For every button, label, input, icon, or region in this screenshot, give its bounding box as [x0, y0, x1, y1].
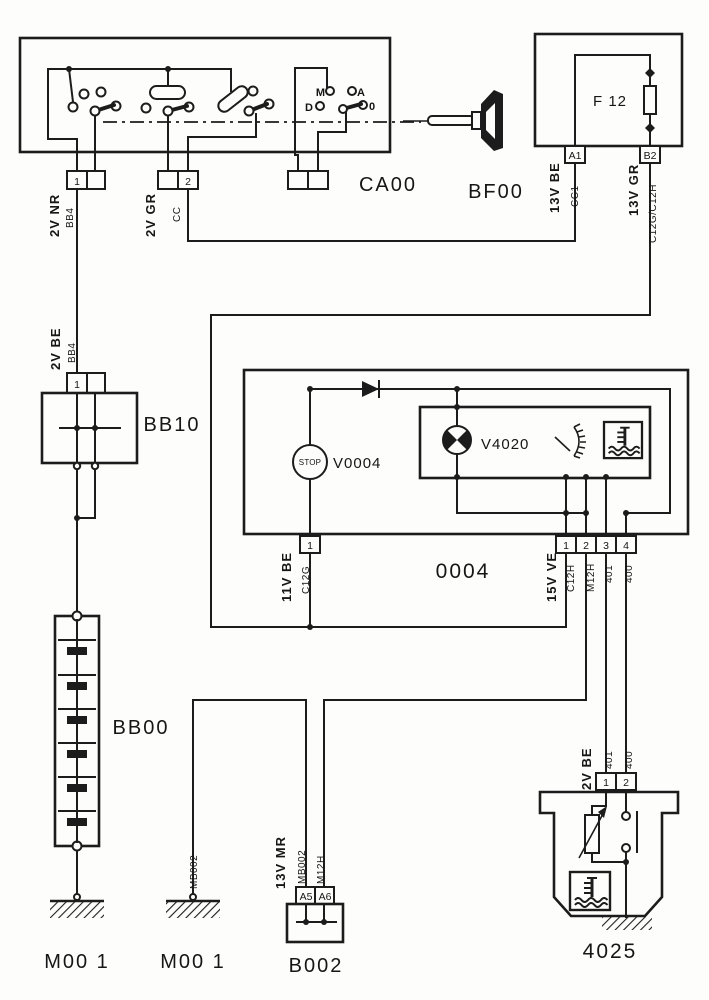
coolant-temp-icon	[604, 422, 642, 458]
bf00-b2-wire-label: 13V GR	[626, 164, 641, 216]
wire-13v-gr	[211, 163, 650, 627]
sensor-ground-hatch-icon	[602, 917, 652, 930]
ground-m001-right: MB002 M00 1	[160, 855, 226, 973]
junction-dot	[74, 425, 80, 431]
component-b002: A5 A6 13V MR MB002 M12H B002	[273, 836, 343, 977]
bf00-pin-b2-number: B2	[644, 150, 657, 162]
cluster-pin3-number: 3	[603, 540, 609, 552]
bf00-box	[535, 34, 682, 146]
ca00-pin2-wire-label: 2V GR	[143, 193, 158, 237]
ignition-key-icon	[403, 90, 503, 151]
ca00-pin2a-box	[158, 171, 178, 189]
wire-switch4-frame	[295, 68, 327, 171]
rotary-switch-2-icon	[142, 86, 194, 116]
ca00-pin1-wire-code: BB4	[65, 208, 76, 228]
ground1-label: M00 1	[44, 951, 110, 973]
v4020-ref-label: V4020	[481, 436, 529, 453]
ca00-pin2-number: 2	[185, 176, 191, 188]
wire-bb10-out	[77, 469, 95, 612]
ground2-label: M00 1	[160, 951, 226, 973]
ca00-pin2-wire-code: CC	[172, 207, 183, 222]
rotary-switch-4-icon: M A D 0	[305, 87, 375, 114]
fuse-node-top	[645, 68, 655, 78]
wire-pin4-feed	[626, 389, 670, 536]
diode-icon	[362, 381, 379, 397]
wire-switch1-feed	[69, 69, 73, 102]
b002-pin-a5-number: A5	[300, 891, 313, 903]
sensor-wire2-code: 400	[624, 751, 635, 769]
ground-hatch-icon	[166, 902, 220, 918]
cluster-ref-label: 0004	[436, 560, 491, 583]
junction-dot	[165, 66, 171, 72]
sensor-pin2-number: 2	[623, 777, 629, 789]
bf00-ref-label: BF00	[468, 181, 524, 203]
bb00-ref-label: BB00	[113, 717, 170, 739]
cluster-pin-left-number: 1	[307, 540, 313, 552]
wire-ca00-pin1-feed	[48, 69, 77, 171]
fuse-f12-label: F 12	[593, 93, 627, 110]
sensor-pin1-number: 1	[603, 777, 609, 789]
bb10-links	[60, 393, 120, 463]
b002-a6-wire-code: M12H	[316, 855, 327, 884]
rotary-switch-3-icon	[216, 84, 274, 116]
b002-pin-a6-number: A6	[319, 891, 332, 903]
v0004-ref-label: V0004	[333, 455, 381, 472]
cluster-wire2-code: M12H	[586, 563, 597, 592]
ca00-pin3b-box	[308, 171, 328, 189]
b002-a5-wire-code: MB002	[297, 850, 308, 884]
ground2-wire-code: MB002	[189, 855, 200, 889]
thermal-switch-icon	[622, 812, 637, 852]
cluster-right-wire-label: 15V VE	[544, 552, 559, 602]
gauge-icon	[555, 424, 586, 458]
switch-pos-a: A	[357, 87, 365, 99]
wire-mb002	[193, 700, 306, 894]
junction-dot	[66, 66, 72, 72]
sensor-ref-label: 4025	[583, 940, 638, 963]
bb10-ref-label: BB10	[144, 414, 201, 436]
junction-dot	[623, 859, 629, 865]
bf00-b2-wire-code: C12G/C12H	[648, 184, 659, 243]
ca00-box	[20, 38, 390, 152]
cluster-pin1-number: 1	[563, 540, 569, 552]
bb10-terminal	[92, 463, 98, 469]
warning-lamp-icon	[443, 426, 471, 454]
ca00-pin1b-box	[87, 171, 105, 189]
battery-cells-icon	[59, 620, 95, 842]
cluster-wire1-code: C12H	[566, 564, 577, 592]
component-bb10: 1 BB10 2V BE BB4	[42, 327, 200, 521]
ground-hatch-icon	[50, 902, 104, 918]
cluster-pin2-number: 2	[583, 540, 589, 552]
component-4025-sensor: 1 2 2V BE 401 400 4025	[540, 747, 678, 963]
bb10-wire-code: BB4	[67, 343, 78, 363]
junction-dot	[307, 624, 313, 630]
stop-lamp-text: STOP	[299, 458, 321, 467]
junction-dot	[74, 515, 80, 521]
rotary-switch-1-icon	[69, 88, 121, 116]
bb10-pin-number: 1	[74, 379, 80, 391]
bf00-a1-wire-code: CC1	[570, 185, 581, 207]
ca00-ref-label: CA00	[359, 174, 417, 196]
cluster-left-wire-label: 11V BE	[279, 552, 294, 602]
wiring-diagram-canvas: M A D 0 1 2 CA00 2V NR BB4 2V GR CC F 12	[0, 0, 709, 1000]
wire-gauge-pins	[566, 477, 606, 536]
fuse-f12-icon	[644, 86, 656, 114]
cluster-wire4-code: 400	[624, 565, 635, 583]
ca00-pin3a-box	[288, 171, 308, 189]
cluster-wire3-code: 401	[604, 565, 615, 583]
fuse-node-bottom	[645, 123, 655, 133]
junction-dot	[92, 425, 98, 431]
b002-ref-label: B002	[289, 955, 344, 977]
wire-m12h	[324, 553, 586, 887]
component-bb00-battery: BB00	[55, 612, 169, 851]
sensor-wire-label: 2V BE	[579, 747, 594, 790]
switch-pos-m: M	[316, 87, 325, 99]
bb10-wire-label: 2V BE	[48, 327, 63, 370]
sensor-wire1-code: 401	[604, 751, 615, 769]
cluster-left-wire-code: C12G	[301, 566, 312, 594]
bf00-pin-a1-number: A1	[569, 150, 582, 162]
cluster-pin4-number: 4	[623, 540, 629, 552]
ca00-pin1-wire-label: 2V NR	[47, 194, 62, 237]
b002-wire-label: 13V MR	[273, 836, 288, 889]
bb10-terminal	[74, 463, 80, 469]
ca00-pin1-number: 1	[74, 176, 80, 188]
switch-pos-0: 0	[369, 101, 375, 113]
bb10-pinb-box	[87, 373, 105, 393]
bf00-a1-wire-label: 13V BE	[547, 162, 562, 213]
wiring-diagram-page: M A D 0 1 2 CA00 2V NR BB4 2V GR CC F 12	[0, 0, 709, 1000]
coolant-temp-icon	[570, 872, 610, 910]
wire-b002-internal	[297, 904, 336, 922]
switch-pos-d: D	[305, 102, 313, 114]
ground-m001-left: M00 1	[44, 894, 110, 973]
